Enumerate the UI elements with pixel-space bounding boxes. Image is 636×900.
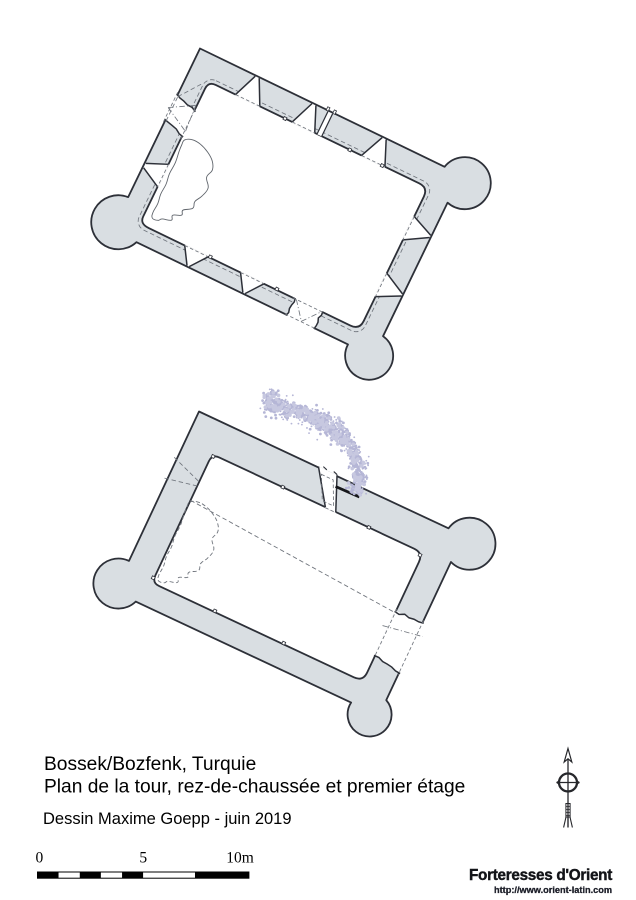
svg-text:http://www.orient-latin.com: http://www.orient-latin.com <box>494 885 612 895</box>
svg-text:Dessin Maxime Goepp - juin 201: Dessin Maxime Goepp - juin 2019 <box>43 810 292 828</box>
svg-text:Plan de la tour, rez-de-chauss: Plan de la tour, rez-de-chaussée et prem… <box>44 777 465 798</box>
svg-text:10m: 10m <box>226 850 254 867</box>
svg-text:Forteresses d'Orient: Forteresses d'Orient <box>469 867 612 884</box>
svg-text:0: 0 <box>36 850 44 867</box>
svg-text:5: 5 <box>139 850 147 867</box>
svg-text:Bossek/Bozfenk, Turquie: Bossek/Bozfenk, Turquie <box>44 754 256 775</box>
